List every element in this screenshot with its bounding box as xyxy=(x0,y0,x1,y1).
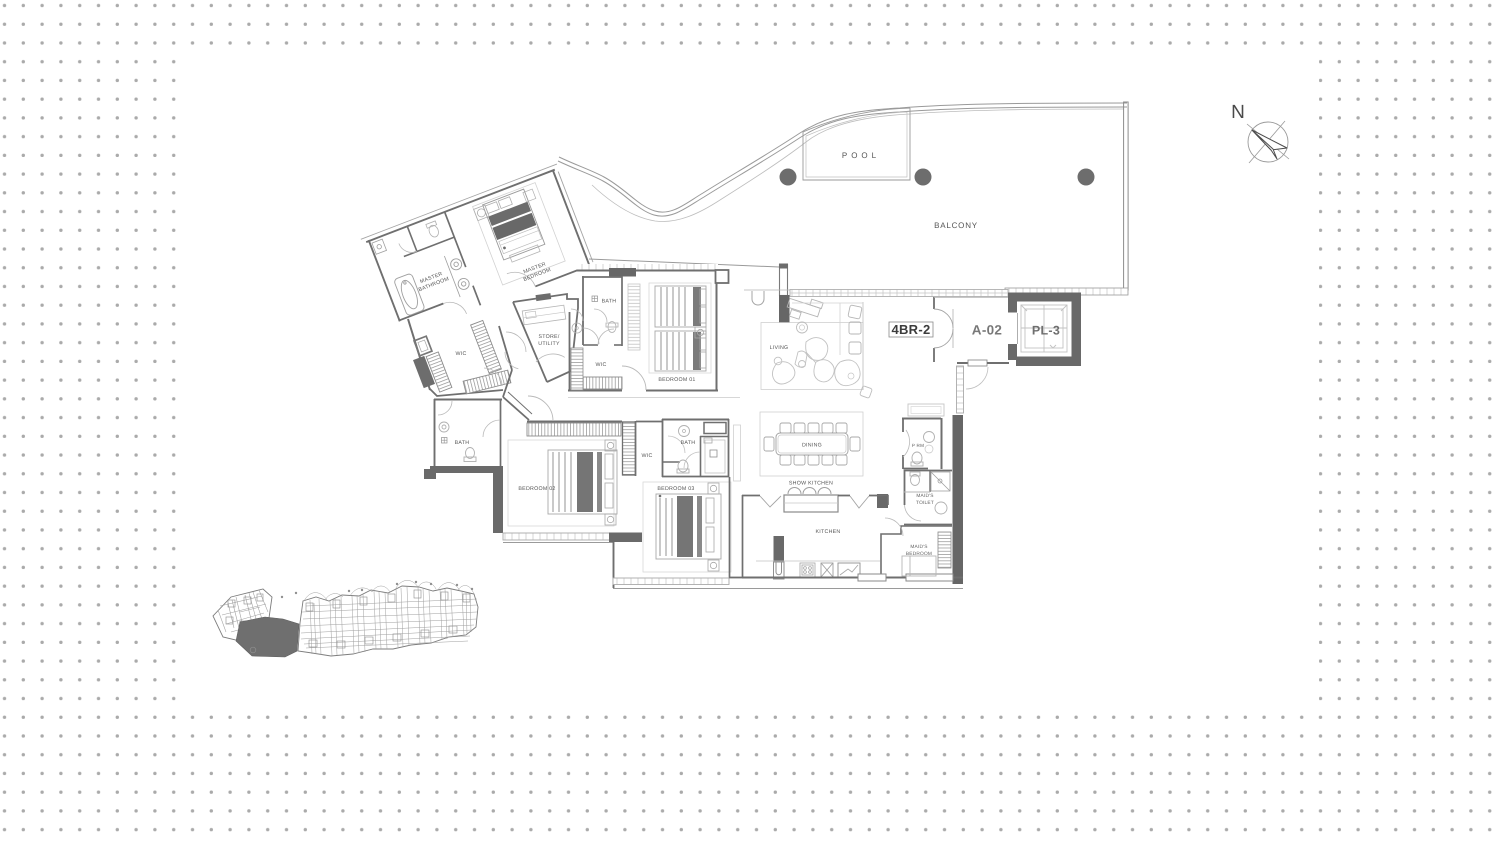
svg-text:WIC: WIC xyxy=(595,362,606,368)
svg-text:SHOW KITCHEN: SHOW KITCHEN xyxy=(789,481,833,487)
svg-text:TOILET: TOILET xyxy=(916,500,934,506)
svg-text:POOL: POOL xyxy=(842,151,880,160)
svg-text:N: N xyxy=(1231,102,1245,123)
svg-text:KITCHEN: KITCHEN xyxy=(816,529,841,535)
svg-text:BEDROOM 01: BEDROOM 01 xyxy=(658,377,695,383)
svg-text:P RM: P RM xyxy=(912,443,924,448)
svg-text:STORE/: STORE/ xyxy=(538,334,559,340)
svg-text:BEDROOM 03: BEDROOM 03 xyxy=(657,486,694,492)
svg-text:4BR-2: 4BR-2 xyxy=(891,322,930,337)
svg-text:BATH: BATH xyxy=(602,299,617,305)
svg-text:UTILITY: UTILITY xyxy=(538,341,560,347)
svg-text:LIVING: LIVING xyxy=(770,345,789,351)
svg-text:BALCONY: BALCONY xyxy=(934,221,978,230)
svg-text:BEDROOM 02: BEDROOM 02 xyxy=(518,486,555,492)
svg-text:BEDROOM: BEDROOM xyxy=(906,551,932,557)
svg-text:PL-3: PL-3 xyxy=(1032,324,1060,338)
svg-text:BATH: BATH xyxy=(681,440,696,446)
svg-text:MAID'S: MAID'S xyxy=(910,544,927,550)
svg-text:MAID'S: MAID'S xyxy=(916,493,933,499)
svg-text:WIC: WIC xyxy=(641,453,652,459)
svg-text:A-02: A-02 xyxy=(972,323,1002,338)
svg-text:BATH: BATH xyxy=(455,440,470,446)
svg-text:DINING: DINING xyxy=(802,443,822,449)
svg-text:WIC: WIC xyxy=(455,351,466,357)
